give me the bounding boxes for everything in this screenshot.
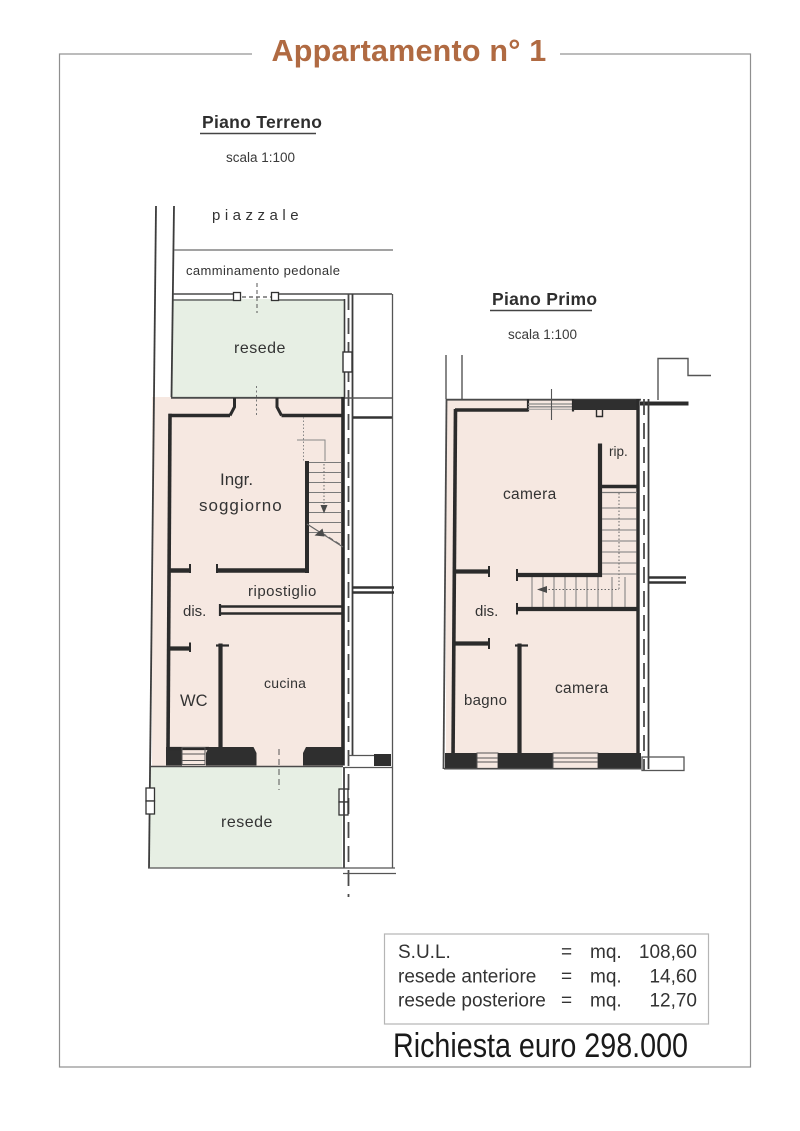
svg-text:bagno: bagno: [464, 692, 507, 709]
svg-text:14,60: 14,60: [649, 967, 697, 988]
svg-text:mq.: mq.: [590, 967, 622, 988]
svg-text:mq.: mq.: [590, 942, 622, 963]
svg-text:108,60: 108,60: [639, 942, 697, 963]
svg-text:WC: WC: [180, 692, 208, 710]
svg-text:resede: resede: [221, 814, 273, 831]
svg-text:camera: camera: [555, 680, 609, 697]
svg-text:resede: resede: [234, 340, 286, 357]
svg-text:rip.: rip.: [609, 444, 628, 459]
svg-text:dis.: dis.: [475, 603, 498, 620]
svg-text:=: =: [561, 942, 572, 963]
svg-text:scala 1:100: scala 1:100: [226, 150, 295, 165]
svg-text:12,70: 12,70: [649, 991, 697, 1012]
svg-text:Richiesta euro 298.000: Richiesta euro 298.000: [393, 1027, 688, 1065]
svg-text:soggiorno: soggiorno: [199, 496, 283, 515]
svg-text:ripostiglio: ripostiglio: [248, 583, 317, 600]
svg-text:Piano Primo: Piano Primo: [492, 289, 597, 309]
svg-text:resede anteriore: resede anteriore: [398, 967, 536, 988]
svg-text:camminamento pedonale: camminamento pedonale: [186, 263, 340, 278]
svg-text:=: =: [561, 991, 572, 1012]
svg-text:dis.: dis.: [183, 603, 206, 620]
svg-text:Appartamento n° 1: Appartamento n° 1: [272, 34, 547, 68]
svg-text:resede posteriore: resede posteriore: [398, 991, 546, 1012]
svg-text:mq.: mq.: [590, 991, 622, 1012]
svg-text:=: =: [561, 967, 572, 988]
svg-text:S.U.L.: S.U.L.: [398, 942, 451, 963]
svg-text:scala 1:100: scala 1:100: [508, 327, 577, 342]
svg-text:Ingr.: Ingr.: [220, 470, 253, 489]
svg-text:cucina: cucina: [264, 675, 306, 691]
svg-text:camera: camera: [503, 486, 557, 503]
svg-text:Piano Terreno: Piano Terreno: [202, 112, 322, 132]
svg-text:piazzale: piazzale: [212, 207, 303, 224]
